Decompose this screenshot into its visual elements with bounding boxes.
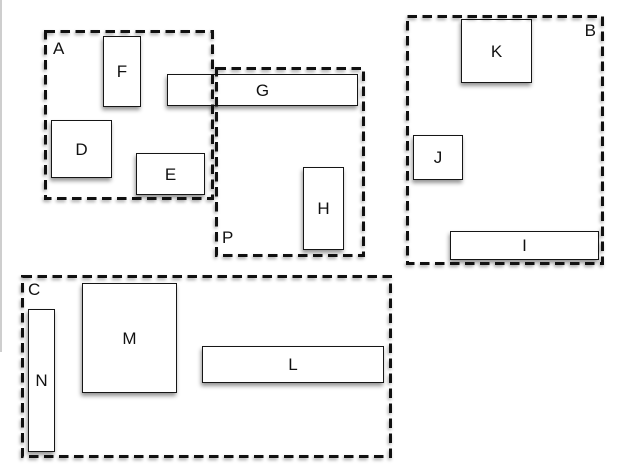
diagram-canvas: D E F G H I J K L M N A B bbox=[0, 0, 623, 476]
box-l: L bbox=[202, 346, 384, 383]
box-n-label: N bbox=[35, 372, 47, 389]
group-c-label: C bbox=[28, 281, 40, 298]
box-k: K bbox=[461, 19, 532, 83]
box-h: H bbox=[303, 167, 344, 250]
box-i: I bbox=[450, 231, 599, 260]
window-edge-line bbox=[0, 0, 2, 352]
box-f-label: F bbox=[117, 63, 127, 80]
group-b-label: B bbox=[585, 22, 596, 39]
box-j-label: J bbox=[434, 149, 443, 166]
box-d: D bbox=[51, 120, 112, 178]
box-e-label: E bbox=[165, 166, 176, 183]
group-p-label: P bbox=[222, 229, 233, 246]
box-d-label: D bbox=[75, 141, 87, 158]
box-g: G bbox=[167, 74, 358, 106]
box-k-label: K bbox=[491, 43, 502, 60]
box-l-label: L bbox=[288, 356, 297, 373]
box-i-label: I bbox=[522, 237, 527, 254]
box-m: M bbox=[82, 283, 177, 393]
box-f: F bbox=[103, 36, 141, 107]
box-j: J bbox=[413, 135, 463, 180]
box-m-label: M bbox=[122, 330, 136, 347]
box-h-label: H bbox=[317, 200, 329, 217]
group-a-label: A bbox=[53, 40, 64, 57]
box-e: E bbox=[136, 153, 205, 195]
box-g-label: G bbox=[256, 82, 269, 99]
box-n: N bbox=[28, 309, 55, 452]
